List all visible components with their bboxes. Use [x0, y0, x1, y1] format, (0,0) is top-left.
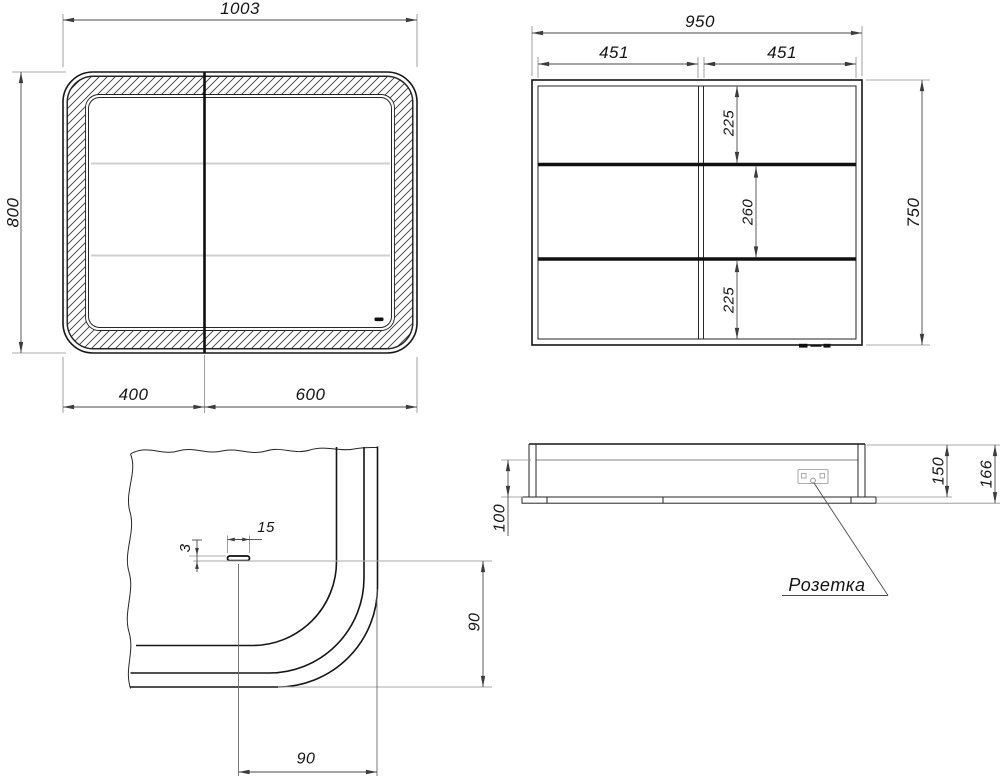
dim-text-225-bottom: 225 [721, 287, 738, 314]
dim-text-166: 166 [979, 460, 996, 488]
dim-text-451-right: 451 [767, 43, 797, 62]
dim-text-3: 3 [177, 543, 194, 552]
mounting-strip [522, 497, 876, 503]
dim-text-90-horizontal: 90 [297, 751, 316, 768]
dim-text-1003: 1003 [220, 0, 260, 18]
mirror-frame-second-line [67, 76, 413, 349]
dimension-sensor-height: 3 [177, 540, 226, 572]
dim-text-260: 260 [740, 199, 757, 226]
bottom-view: Розетка 100 150 166 [492, 444, 1000, 596]
dimension-sensor-offset-horizontal: 90 [239, 751, 378, 773]
dimension-section-widths: 451 451 [538, 43, 856, 78]
drawing-sheet: 1003 800 400 600 [0, 0, 1000, 776]
dim-text-100: 100 [492, 504, 509, 532]
dim-text-800: 800 [4, 198, 23, 228]
carcass-inner [538, 86, 856, 339]
carcass-view: 950 451 451 750 225 260 225 [532, 12, 930, 348]
carcass-outer [532, 80, 862, 345]
dimension-inner-depth: 100 [492, 460, 532, 536]
dimension-overall-height: 800 [4, 72, 67, 353]
dim-text-950: 950 [685, 12, 715, 31]
mirror-glass-edge [89, 98, 392, 328]
frame-corner-outer [131, 447, 378, 688]
dim-text-225-top: 225 [721, 110, 738, 137]
touch-switch-mark [375, 318, 384, 322]
dimension-door-widths: 400 600 [63, 355, 417, 413]
dimension-depths: 150 166 [867, 445, 1000, 503]
socket-callout: Розетка [782, 483, 888, 596]
socket-label: Розетка [788, 575, 865, 595]
mirror-frame-hatch-band [68, 77, 413, 349]
dim-text-15: 15 [257, 519, 275, 536]
sensor-button [228, 556, 250, 561]
break-line-top [131, 447, 378, 454]
corner-detail-view: 15 3 90 90 [127, 447, 492, 776]
frame-corner-inner [136, 447, 337, 646]
dim-text-600: 600 [296, 385, 326, 404]
dim-text-451-left: 451 [599, 43, 629, 62]
dimension-overall-width: 1003 [63, 0, 417, 67]
dimension-section-heights: 225 260 225 [721, 86, 757, 339]
dimension-sensor-offset-vertical: 90 [467, 561, 484, 687]
dim-text-90-vertical: 90 [467, 613, 484, 632]
dim-text-750: 750 [904, 198, 923, 228]
dimension-carcass-height: 750 [866, 80, 930, 345]
socket-hidden-outline [798, 470, 828, 484]
break-line-left [127, 454, 133, 689]
dimension-carcass-width: 950 [532, 12, 862, 76]
technical-drawing: 1003 800 400 600 [0, 0, 1000, 776]
dimension-sensor-width: 15 [228, 519, 275, 553]
front-view: 1003 800 400 600 [4, 0, 418, 413]
dim-text-150: 150 [931, 457, 948, 485]
dim-text-400: 400 [119, 385, 149, 404]
mirror-frame-outer [63, 72, 417, 353]
